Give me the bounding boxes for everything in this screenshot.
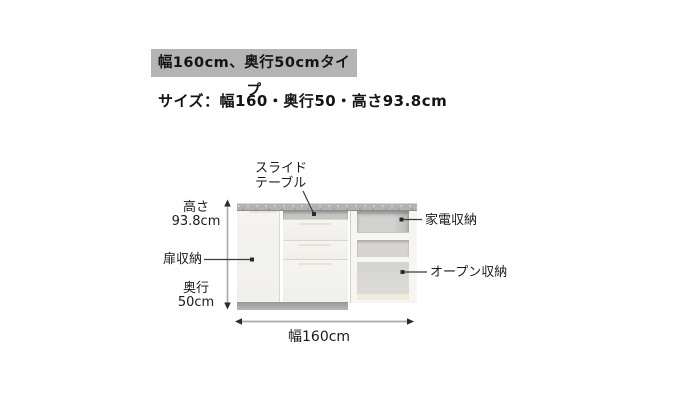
open-shelf-section: [350, 211, 417, 303]
drawer-middle: [283, 240, 348, 259]
depth-label: 奥行 50cm: [170, 282, 222, 309]
slide-table-label: スライド テーブル: [255, 161, 305, 191]
drawer-handle-groove: [298, 244, 331, 246]
drawer-top: [283, 219, 348, 240]
slide-table-label-line1: スライド: [255, 161, 305, 176]
bottom-front-edge: [357, 300, 409, 303]
depth-label-value: 50cm: [170, 296, 222, 310]
open-shelf-interior: [357, 211, 409, 303]
drawer-handle-groove: [298, 263, 331, 265]
countertop: [237, 203, 417, 211]
width-dimension-arrow: [235, 318, 414, 325]
width-label: 幅160cm: [288, 330, 348, 345]
appliance-compartment: [357, 211, 409, 232]
size-summary-text: サイズ：幅160・奥行50・高さ93.8cm: [158, 90, 447, 111]
shelf-board: [357, 232, 409, 240]
lower-open-compartment: [357, 262, 409, 294]
kickboard-base: [237, 302, 348, 310]
height-label-title: 高さ: [170, 201, 222, 215]
cabinet-door-section: [237, 211, 280, 302]
open-storage-label: オープン収納: [430, 265, 507, 280]
drawer-bottom: [283, 259, 348, 302]
door-storage-label: 扉収納: [163, 252, 202, 267]
door-handle-groove: [250, 211, 277, 213]
drawer-section: [283, 211, 348, 302]
appliance-storage-label: 家電収納: [425, 213, 477, 228]
upper-open-compartment: [357, 240, 409, 257]
drawer-handle-groove: [298, 223, 331, 225]
slide-table-slot: [283, 211, 348, 219]
height-dimension-arrow: [224, 200, 231, 310]
depth-label-title: 奥行: [170, 282, 222, 296]
type-label-badge: 幅160cm、奥行50cmタイプ: [151, 49, 357, 77]
height-label-value: 93.8cm: [170, 215, 222, 229]
slide-table-label-line2: テーブル: [255, 176, 305, 191]
height-label: 高さ 93.8cm: [170, 201, 222, 228]
product-dimension-page: 幅160cm、奥行50cmタイプ サイズ：幅160・奥行50・高さ93.8cm: [0, 0, 680, 420]
